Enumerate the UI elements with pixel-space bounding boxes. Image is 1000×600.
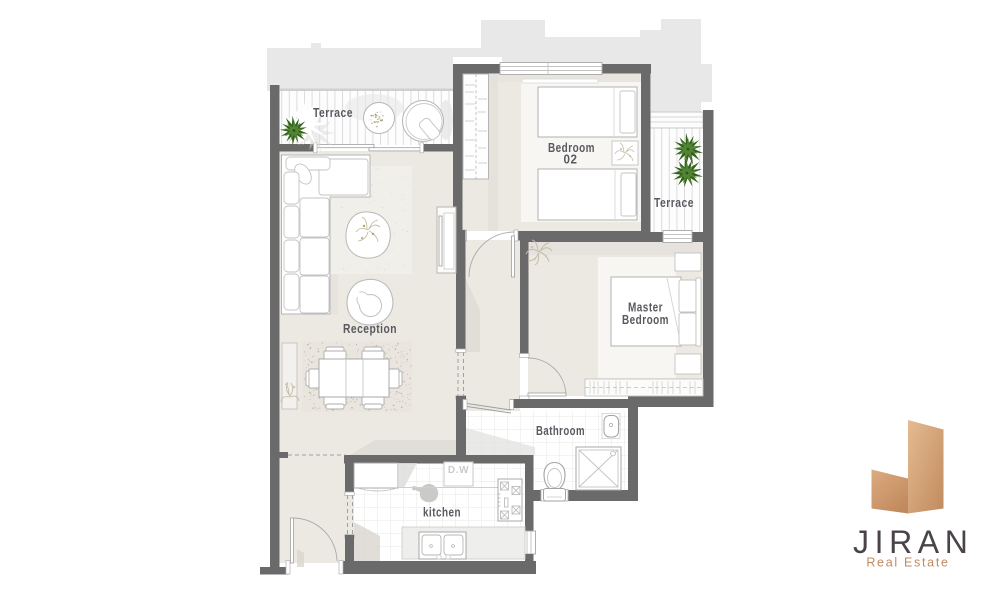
- svg-text:Bathroom: Bathroom: [536, 423, 585, 438]
- svg-text:Terrace: Terrace: [313, 105, 353, 120]
- svg-text:kitchen: kitchen: [423, 505, 461, 520]
- svg-text:Terrace: Terrace: [654, 195, 694, 210]
- svg-text:Reception: Reception: [343, 321, 397, 336]
- svg-text:D.W: D.W: [448, 465, 469, 476]
- svg-text:Real Estate: Real Estate: [866, 556, 949, 570]
- svg-text:02: 02: [564, 152, 578, 167]
- svg-text:Bedroom: Bedroom: [622, 312, 669, 327]
